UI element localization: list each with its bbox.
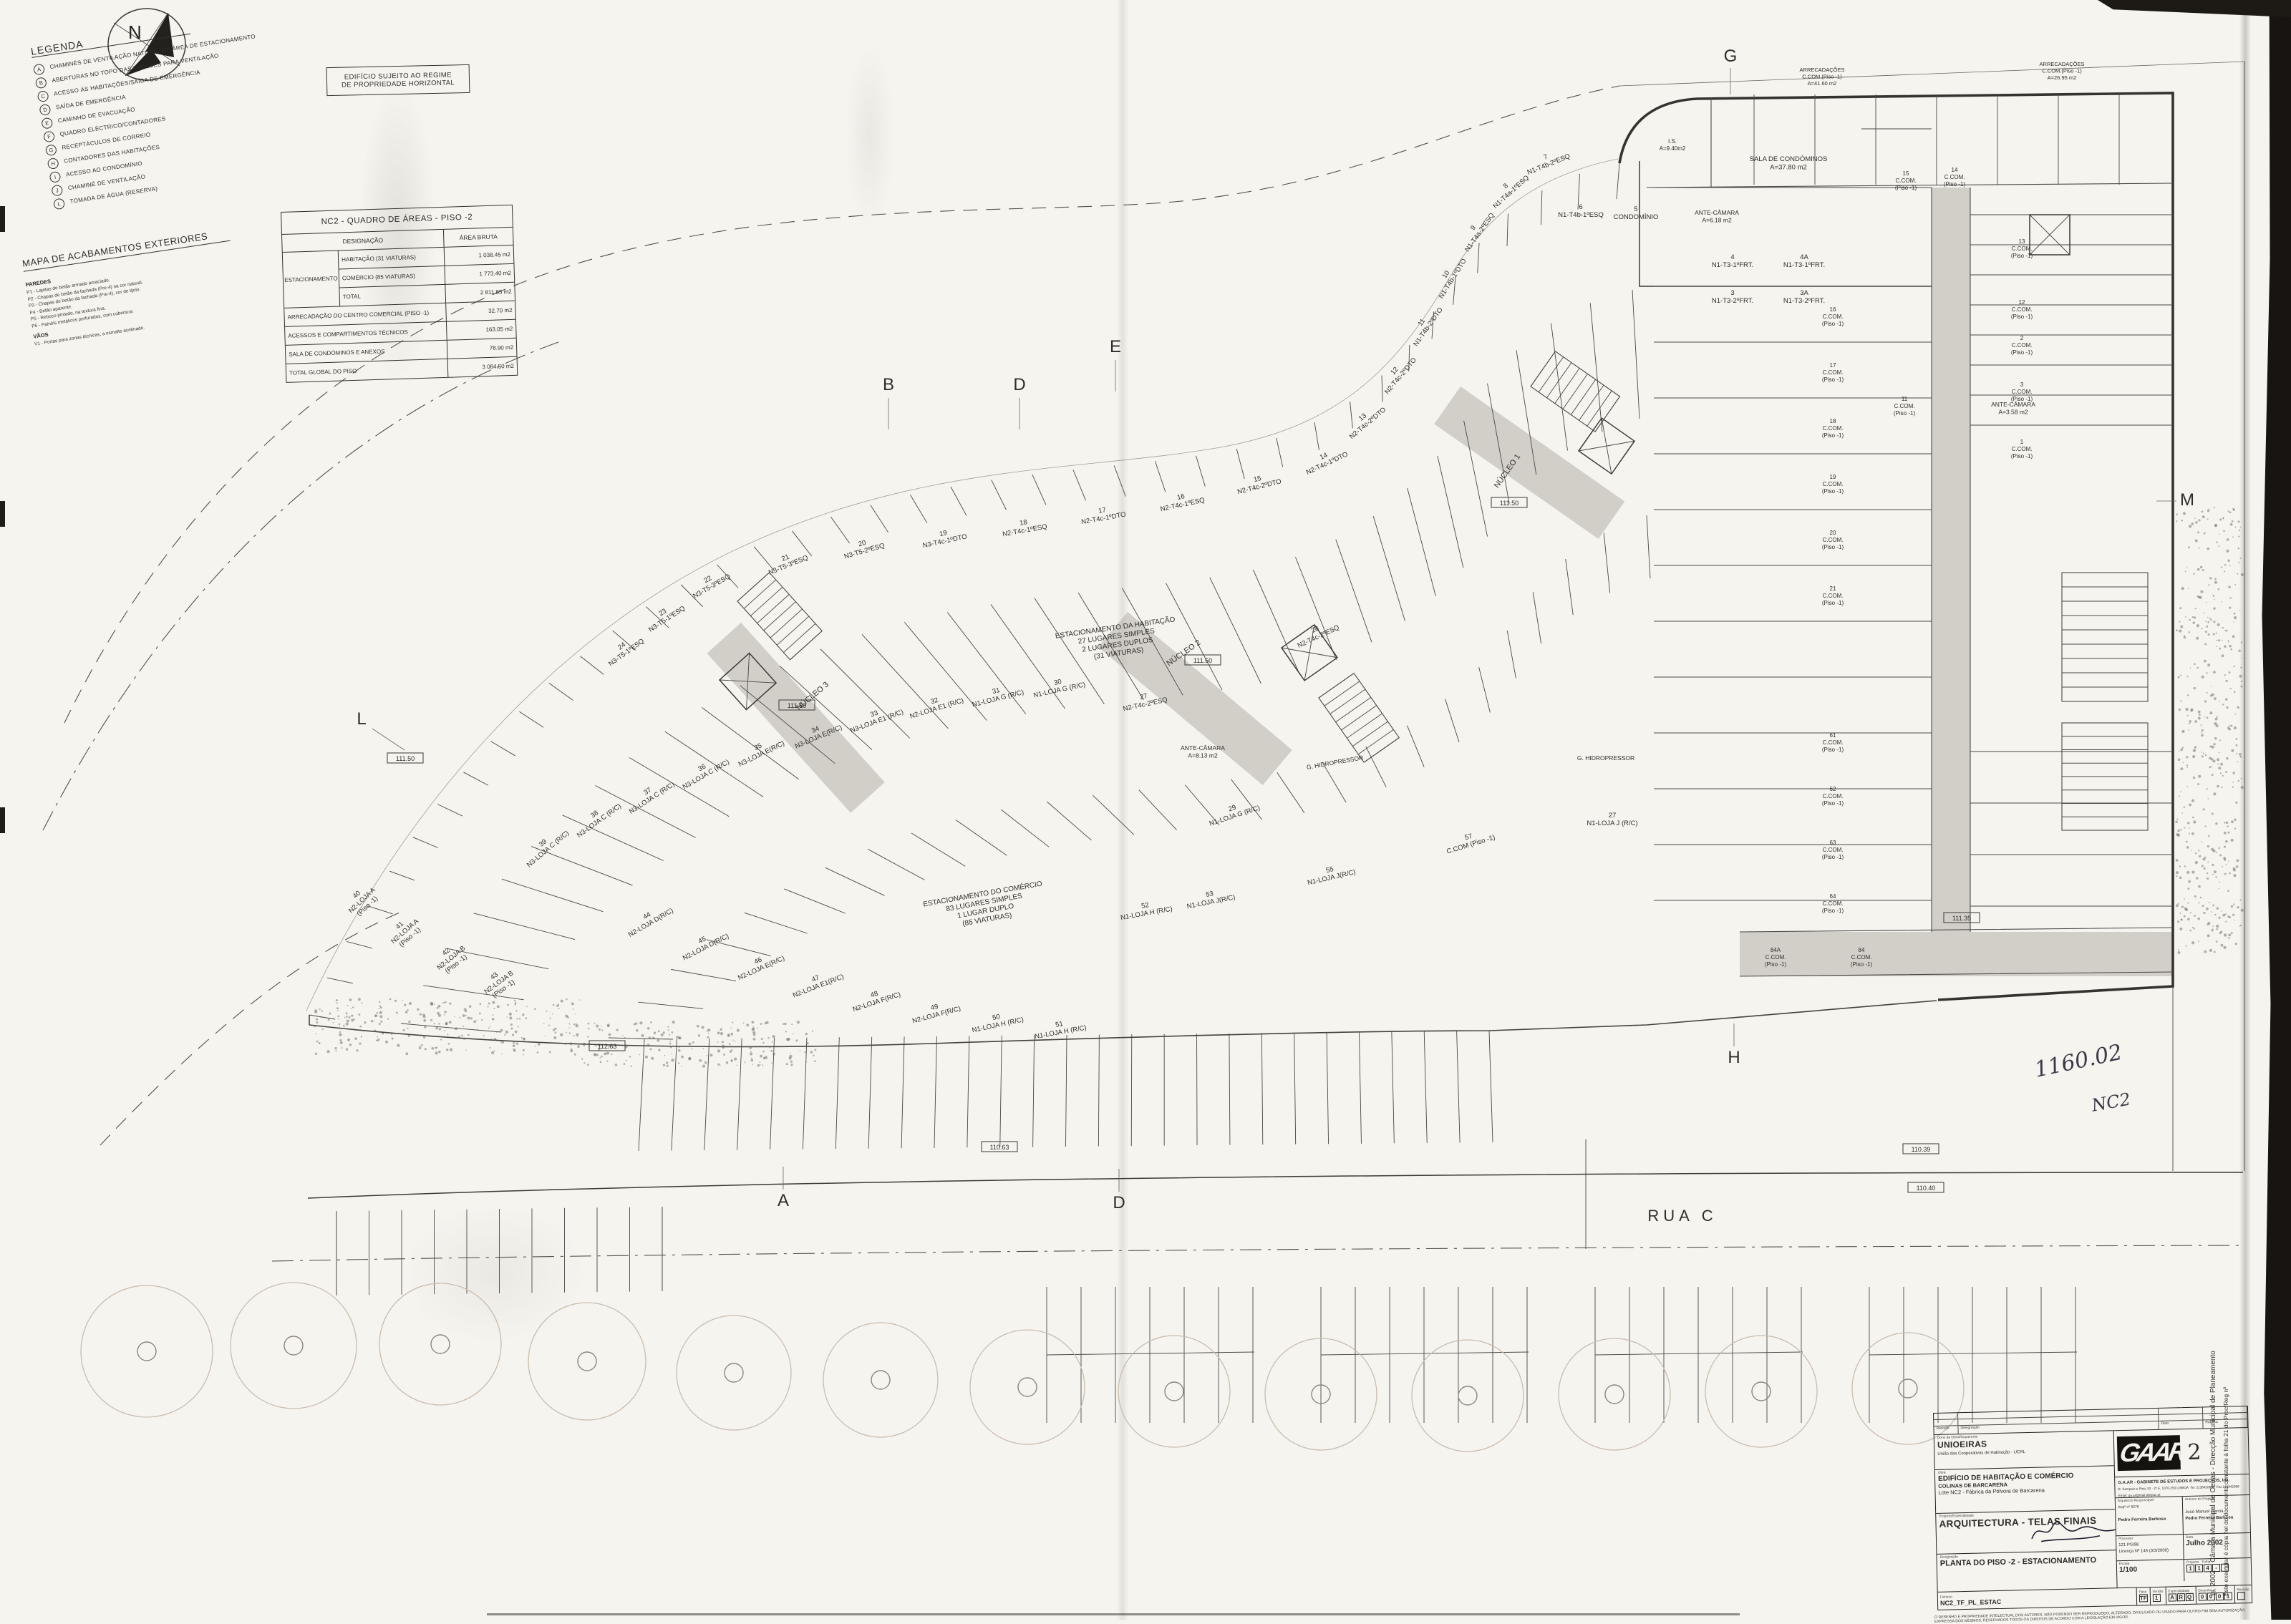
svg-text:111.50: 111.50 <box>788 702 806 709</box>
paper-edge-mark <box>0 807 5 833</box>
elevation-marker: 111.50 <box>387 753 423 763</box>
plan-label: 13N2-T4c-2ºDTO <box>1343 400 1387 441</box>
paper-edge-bottom <box>487 1613 1740 1615</box>
plan-label: 47N2-LOJA E1(R/C) <box>789 966 845 1000</box>
plan-label: 32N2-LOJA E1 (R/C) <box>906 689 964 721</box>
plan-label: 29N1-LOJA G (R/C) <box>1206 797 1261 828</box>
plan-label: 4AN1-T3-1ºFRT. <box>1783 253 1825 269</box>
plan-label: 18C.COM.(Piso -1) <box>1822 418 1844 439</box>
handwritten-note: 1160.02 <box>2033 1040 2125 1083</box>
rev-col-revisao: Revisão <box>1934 1426 1958 1434</box>
svg-text:111.35: 111.35 <box>1952 915 1971 922</box>
plan-label: 4N1-T3-1ºFRT. <box>1712 253 1753 269</box>
plan-label: 44N2-LOJA D(R/C) <box>623 900 674 938</box>
parking-combs <box>336 1031 1493 1295</box>
grid-reference-letter: H <box>1728 1048 1740 1067</box>
plan-label: 18N2-T4c-1ºESQ <box>1001 515 1048 539</box>
plan-label: 15C.COM.(Piso -1) <box>1895 170 1917 191</box>
plan-label: 3N1-T3-2ºFRT. <box>1712 289 1753 305</box>
plan-label: 11N1-T4b-2ºDTO <box>1405 301 1444 348</box>
gaar-logo: GAAR <box>2117 1435 2181 1471</box>
plan-label: 14N2-T4c-1ºDTO <box>1302 443 1349 477</box>
svg-text:110.40: 110.40 <box>1917 1185 1936 1192</box>
plan-label: 51N1-LOJA H (R/C) <box>1032 1016 1087 1041</box>
plan-label: ANTE-CÂMARAA=8.13 m2 <box>1181 744 1225 759</box>
elevation-marker: 110.63 <box>982 1142 1017 1152</box>
plan-label: 14C.COM.(Piso -1) <box>1944 167 1966 188</box>
plan-label: 61C.COM.(Piso -1) <box>1822 732 1844 753</box>
grid-reference-letter: A <box>778 1191 789 1210</box>
elevation-marker: 111.50 <box>1491 497 1527 507</box>
signature <box>2028 1515 2121 1546</box>
plan-label: 3AN1-T3-2ºFRT. <box>1783 289 1825 305</box>
svg-text:111.50: 111.50 <box>396 755 415 762</box>
grid-reference-letter: L <box>357 709 366 729</box>
areas-row-value: 1 773.40 m2 <box>445 264 514 285</box>
title-block: Revisão Designação Data Rubrica Dono da … <box>1933 1406 2252 1610</box>
plan-label: 46N2-LOJA E(R/C) <box>734 947 786 982</box>
espec-cells: ARQ <box>2168 1593 2193 1602</box>
grid-reference-letter: E <box>1110 337 1121 356</box>
plan-label: 21N3-T5-3ºESQ <box>765 547 809 577</box>
plan-label: 55N1-LOJA J(R/C) <box>1305 860 1357 887</box>
scale-value: 1/100 <box>2119 1566 2137 1575</box>
plan-label: 5CONDOMÍNIO <box>1614 205 1659 221</box>
plan-label: 19N3-T4c-1ºDTO <box>921 525 968 550</box>
plan-label: 19C.COM.(Piso -1) <box>1822 474 1844 495</box>
plan-label: 27N1-LOJA J (R/C) <box>1587 812 1637 827</box>
plan-label: 41N2-LOJA A(Piso -1) <box>384 911 426 951</box>
plan-label: 52N1-LOJA H (R/C) <box>1118 898 1173 922</box>
plan-label: 17C.COM.(Piso -1) <box>1822 362 1844 383</box>
areas-row-value: 163.05 m2 <box>447 320 516 341</box>
versao-value: 1 <box>2153 1594 2161 1602</box>
svg-text:111.50: 111.50 <box>1500 500 1519 507</box>
author-1: José Manuel Garcia <box>2185 1509 2223 1514</box>
plan-label: 35N3-LOJA E(R/C) <box>734 732 786 769</box>
handwritten-note: NC2 <box>2089 1089 2132 1116</box>
plan-label: 30N1-LOJA G (R/C) <box>1031 673 1086 699</box>
elevation-marker: 110.40 <box>1908 1182 1944 1192</box>
plan-label: ARRECADAÇÕESC.COM.(Piso -1)A=26.95 m2 <box>2040 61 2085 81</box>
plan-label: 57C.COM (Piso -1) <box>1443 826 1496 856</box>
grid-reference-letter: M <box>2180 490 2194 510</box>
firm-addr1: R. Sampaio e Pina, 52 - 2º E, 1070-250 L… <box>2118 1486 2189 1491</box>
scanned-floor-plan-sheet: { "compass": {"n": "N"}, "note_box": {"l… <box>0 0 2291 1620</box>
plan-label: ARRECADAÇÕESC.COM.(Piso -1)A=41.60 m2 <box>1800 67 1845 87</box>
areas-col-area: ÁREA BRUTA <box>444 228 513 247</box>
plan-label: 17N2-T4c-1ºDTO <box>1080 503 1127 527</box>
plan-label: 43N2-LOJA B(Piso -1) <box>478 963 520 1003</box>
plan-label: 64C.COM.(Piso -1) <box>1822 893 1844 914</box>
areas-row-value: 1 038.45 m2 <box>445 245 514 266</box>
plan-label: 12C.COM.(Piso -1) <box>2011 299 2033 320</box>
client-sub: União das Cooperativas de Habitação - UC… <box>1937 1450 2025 1457</box>
fase-value: TF <box>2139 1594 2148 1602</box>
plan-label: ANTE-CÂMARAA=6.18 m2 <box>1695 209 1739 224</box>
plan-label: 42N2-LOJA B(Piso -1) <box>430 938 472 978</box>
plan-label: ANTE-CÂMARAA=3.58 m2 <box>1991 401 2035 416</box>
paper-edge-mark <box>0 501 5 527</box>
license-value: Licença Nº 146 (3/3/2000) <box>2118 1549 2169 1555</box>
obra-line3: Lote NC2 - Fábrica da Pólvora de Barcare… <box>1938 1487 2045 1495</box>
elevation-marker: 110.39 <box>1903 1144 1939 1154</box>
areas-table: NC2 - QUADRO DE ÁREAS - PISO -2 DESIGNAÇ… <box>281 205 518 383</box>
plan-label: 20C.COM.(Piso -1) <box>1822 530 1844 550</box>
plan-label: 9N1-T4a-2ºESQ <box>1457 207 1496 253</box>
resp-label: Arquitecto Responsável <box>2118 1498 2180 1503</box>
plan-label: 63C.COM.(Piso -1) <box>1822 840 1844 860</box>
plan-label: 24N3-T5-1ºESQ <box>603 631 646 668</box>
grid-reference-letter: D <box>1113 1193 1125 1212</box>
areas-row-value: 32.70 m2 <box>446 301 515 322</box>
plan-label: 49N2-LOJA F(R/C) <box>909 997 962 1025</box>
plan-label: 1C.COM.(Piso -1) <box>2011 439 2033 460</box>
plan-label: G. HIDROPRESSOR <box>1577 754 1634 762</box>
plan-label: 40N2-LOJA A(Piso -1) <box>342 880 382 921</box>
plan-label: 10N1-T4b-1ºDTO <box>1430 253 1468 300</box>
plan-label: 21C.COM.(Piso -1) <box>1822 585 1844 606</box>
plan-label: 38N3-LOJA C (R/C) <box>571 796 623 840</box>
regime-note-box: EDIFÍCIO SUJEITO AO REGIME DE PROPRIEDAD… <box>326 64 470 96</box>
areas-row-value: 3 084.50 m2 <box>448 357 518 377</box>
grid-reference-letter: D <box>1013 375 1025 394</box>
svg-text:111.50: 111.50 <box>1193 657 1212 664</box>
areas-row-value: 2 811.85 m2 <box>445 283 515 303</box>
plan-label: ESTACIONAMENTO DO COMÉRCIO83 LUGARES SIM… <box>922 878 1047 934</box>
plan-label: 28N2-T4c-2ºESQ <box>1293 616 1341 650</box>
plan-label: 31N1-LOJA G (R/C) <box>969 681 1025 709</box>
client-name: UNIOEIRAS <box>1937 1439 1987 1450</box>
plan-label: 39N3-LOJA C (R/C) <box>520 823 571 869</box>
plan-label: 8N1-T4a-1ºESQ <box>1486 168 1531 210</box>
edge-certification-text: Este exemplar é cópia fiel do documento … <box>2222 823 2229 1596</box>
plan-label: SALA DE CONDÓMINOSA=37.80 m2 <box>1750 155 1828 172</box>
plan-label: G. HIDROPRESSOR <box>1306 754 1364 771</box>
elevation-marker: 111.50 <box>1185 655 1221 665</box>
svg-text:110.39: 110.39 <box>1912 1146 1931 1153</box>
plan-label: 11C.COM.(Piso -1) <box>1894 396 1916 417</box>
plan-label: 15N2-T4c-2ºDTO <box>1235 470 1282 497</box>
svg-text:112.63: 112.63 <box>598 1043 617 1050</box>
grid-reference-letter: G <box>1724 47 1738 66</box>
plan-label: 12N2-T4c-2ºDTO <box>1377 351 1418 396</box>
resp-sub: Arqtº nº 5578 <box>2118 1505 2139 1510</box>
plan-label: 16C.COM.(Piso -1) <box>1822 306 1844 327</box>
plan-label: 33N3-LOJA E1 (R/C) <box>847 701 905 734</box>
plan-label: 2C.COM.(Piso -1) <box>2011 335 2033 356</box>
plan-label: 23N3-T5-1ºESQ <box>643 598 687 633</box>
plan-label: RUA C <box>1647 1207 1717 1225</box>
process-value: 121 PS/98 <box>2118 1543 2139 1548</box>
building-outline <box>306 93 2173 1046</box>
plan-label: 16N2-T4c-1ºESQ <box>1158 489 1205 514</box>
plan-label: 53N1-LOJA J(R/C) <box>1185 886 1236 911</box>
plan-label: 6N1-T4b-1ºESQ <box>1558 203 1604 219</box>
svg-text:110.63: 110.63 <box>990 1144 1009 1151</box>
sheet-page-number: 2 <box>2187 1439 2202 1464</box>
grid-reference-letter: B <box>883 375 894 394</box>
proj-cells: 114-- <box>2186 1563 2249 1572</box>
paper-edge-mark <box>0 206 5 232</box>
edge-copyright-text: © 2002 Câmara Municipal de Oeiras - Dire… <box>2209 752 2217 1596</box>
resp-name: Pedro Ferreira Barbosa <box>2118 1517 2166 1523</box>
areas-row-value: 78.90 m2 <box>447 339 517 359</box>
plan-label: 20N3-T5-2ºESQ <box>841 534 886 560</box>
areas-group-estacionamento: ESTACIONAMENTO <box>283 251 340 308</box>
circulation-cores <box>707 188 2173 976</box>
plan-label: 37N3-LOJA C (R/C) <box>624 774 677 815</box>
plan-label: 50N1-LOJA H (R/C) <box>969 1008 1024 1035</box>
plan-label: I.S.A=9.40m2 <box>1660 138 1686 152</box>
date-value: Julho 2002 <box>2186 1539 2223 1547</box>
plan-label: 48N2-LOJA F(R/C) <box>849 983 901 1013</box>
process-label: Processo <box>2118 1536 2181 1541</box>
rev-col-data: Data <box>2159 1420 2203 1429</box>
plan-label: 7N1-T4b-2ºESQ <box>1523 145 1571 177</box>
plan-label: 3C.COM.(Piso -1) <box>2011 381 2033 402</box>
